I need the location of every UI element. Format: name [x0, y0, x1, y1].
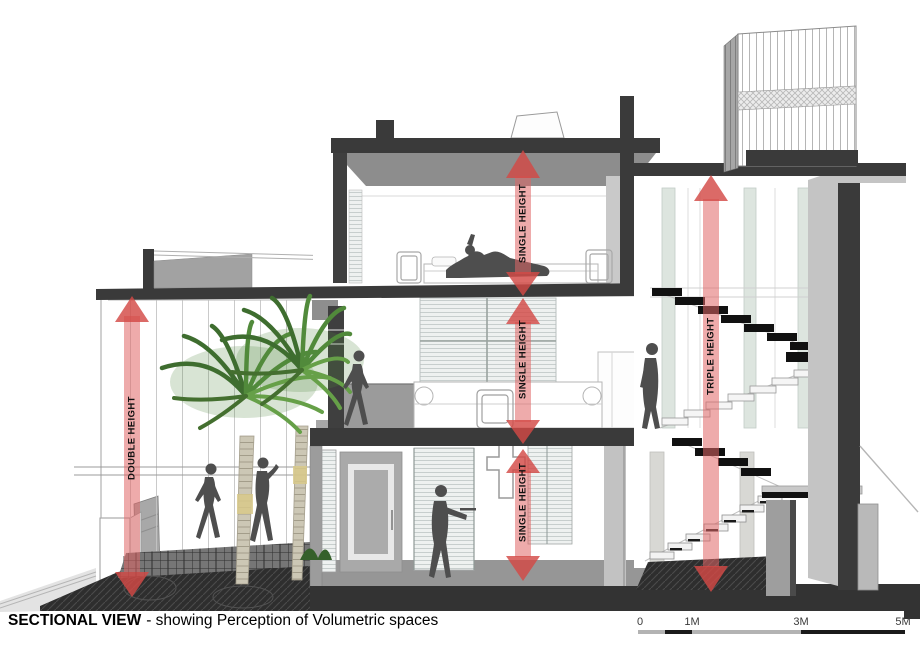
gray-cabinet [340, 452, 402, 572]
stair-wall-column [620, 96, 634, 296]
single-height-lower-label: SINGLE HEIGHT [516, 465, 530, 539]
right-cut-wall [838, 166, 860, 590]
triple-height-label: TRIPLE HEIGHT [704, 319, 718, 393]
roof-parapet [154, 254, 252, 288]
right-annex [858, 446, 918, 590]
roof-beam [331, 138, 660, 153]
title-description: - showing Perception of Volumetric space… [146, 612, 438, 630]
sectional-view-sheet: DOUBLE HEIGHT SINGLE HEIGHT SINGLE HEIGH… [0, 0, 920, 651]
louver-shutter [349, 190, 362, 283]
slat-panel-right [528, 444, 572, 544]
wardrobe-wall [333, 150, 347, 283]
single-height-upper-label: SINGLE HEIGHT [516, 186, 530, 260]
skylight [511, 112, 564, 138]
ground-step [904, 584, 920, 619]
section-drawing [0, 0, 920, 651]
drawing-title: SECTIONAL VIEW - showing Perception of V… [8, 612, 438, 630]
roof-post [376, 120, 394, 140]
pillow [432, 257, 456, 266]
single-height-middle-label: SINGLE HEIGHT [516, 322, 530, 396]
double-height-label: DOUBLE HEIGHT [125, 400, 139, 476]
annex-door [858, 504, 878, 590]
title-heading: SECTIONAL VIEW [8, 612, 141, 630]
ground-slab [310, 586, 650, 611]
parapet-post [143, 249, 154, 289]
louver-tower [724, 26, 858, 172]
